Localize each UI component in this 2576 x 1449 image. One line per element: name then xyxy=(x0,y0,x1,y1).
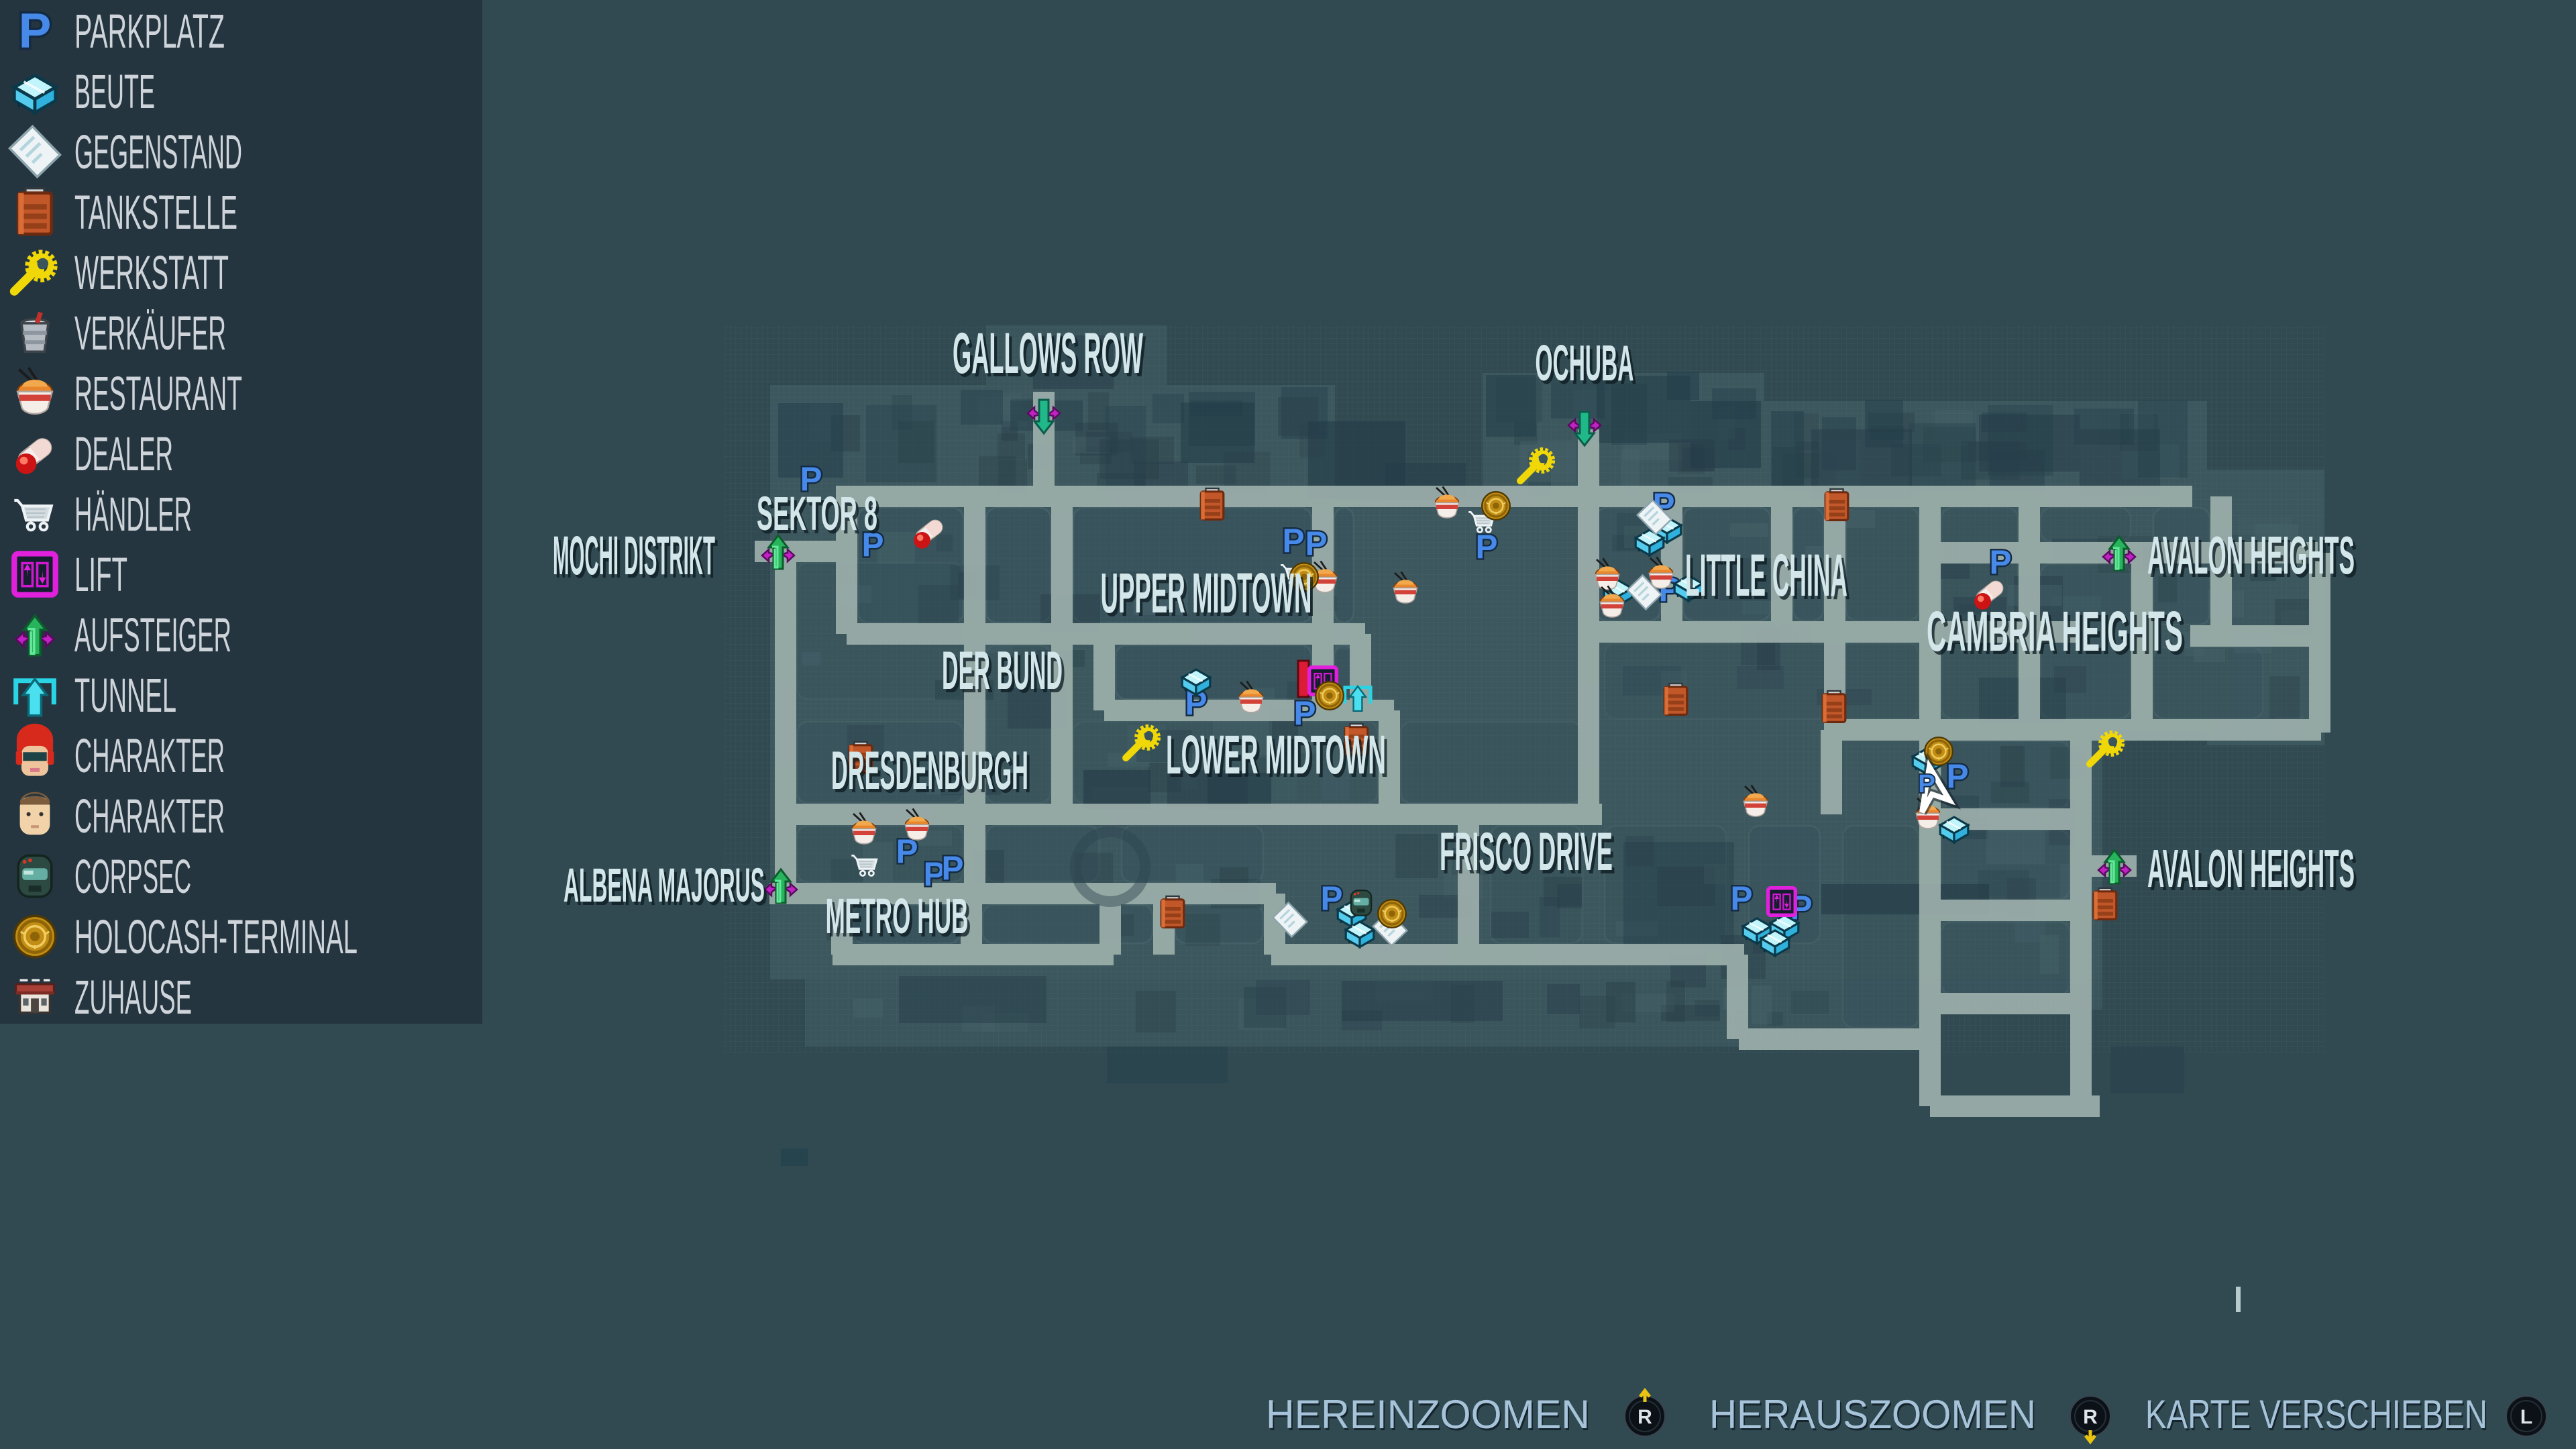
svg-text:L: L xyxy=(2520,1406,2532,1428)
svg-text:METRO HUB: METRO HUB xyxy=(826,888,969,944)
svg-text:CAMBRIA HEIGHTS: CAMBRIA HEIGHTS xyxy=(1927,600,2183,663)
svg-text:ALBENA MAJORUS: ALBENA MAJORUS xyxy=(563,859,765,912)
svg-text:FRISCO DRIVE: FRISCO DRIVE xyxy=(1440,822,1613,882)
svg-text:CORPSEC: CORPSEC xyxy=(74,851,191,904)
svg-text:HÄNDLER: HÄNDLER xyxy=(74,488,192,541)
svg-text:GEGENSTAND: GEGENSTAND xyxy=(74,126,242,179)
svg-text:HOLOCASH-TERMINAL: HOLOCASH-TERMINAL xyxy=(74,911,358,964)
svg-text:R: R xyxy=(1638,1406,1652,1428)
svg-text:PARKPLATZ: PARKPLATZ xyxy=(74,5,225,58)
svg-text:WERKSTATT: WERKSTATT xyxy=(74,247,229,300)
svg-text:AUFSTEIGER: AUFSTEIGER xyxy=(74,609,231,662)
svg-text:LOWER MIDTOWN: LOWER MIDTOWN xyxy=(1166,724,1386,786)
svg-text:KARTE VERSCHIEBEN: KARTE VERSCHIEBEN xyxy=(2145,1392,2487,1437)
svg-text:OCHUBA: OCHUBA xyxy=(1536,335,1634,391)
svg-text:RESTAURANT: RESTAURANT xyxy=(74,368,242,421)
svg-text:ZUHAUSE: ZUHAUSE xyxy=(74,971,192,1024)
svg-text:DER BUND: DER BUND xyxy=(942,641,1063,701)
svg-text:HEREINZOOMEN: HEREINZOOMEN xyxy=(1266,1392,1590,1437)
svg-text:GALLOWS ROW: GALLOWS ROW xyxy=(953,321,1143,386)
svg-text:SEKTOR 8: SEKTOR 8 xyxy=(757,488,877,541)
svg-text:TANKSTELLE: TANKSTELLE xyxy=(74,186,237,239)
svg-text:DRESDENBURGH: DRESDENBURGH xyxy=(831,741,1028,801)
svg-text:AVALON HEIGHTS: AVALON HEIGHTS xyxy=(2147,839,2355,898)
svg-text:MOCHI DISTRIKT: MOCHI DISTRIKT xyxy=(553,525,715,586)
svg-text:AVALON HEIGHTS: AVALON HEIGHTS xyxy=(2147,525,2355,585)
svg-text:CHARAKTER: CHARAKTER xyxy=(74,730,225,783)
svg-text:R: R xyxy=(2083,1406,2098,1428)
svg-text:LITTLE CHINA: LITTLE CHINA xyxy=(1685,541,1847,608)
svg-text:UPPER MIDTOWN: UPPER MIDTOWN xyxy=(1101,561,1312,625)
svg-text:BEUTE: BEUTE xyxy=(74,66,155,119)
svg-text:LIFT: LIFT xyxy=(74,549,127,602)
svg-text:DEALER: DEALER xyxy=(74,428,173,481)
svg-text:TUNNEL: TUNNEL xyxy=(74,669,176,722)
svg-text:VERKÄUFER: VERKÄUFER xyxy=(74,307,226,360)
svg-text:HERAUSZOOMEN: HERAUSZOOMEN xyxy=(1709,1392,2036,1437)
svg-text:CHARAKTER: CHARAKTER xyxy=(74,790,225,843)
